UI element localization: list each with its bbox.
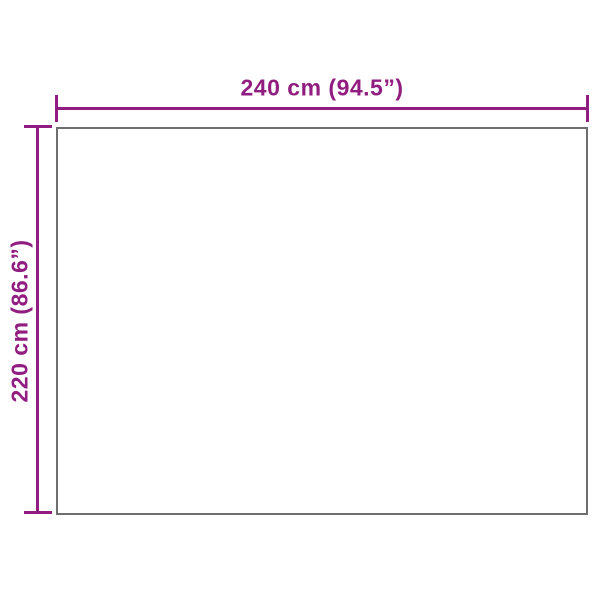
dimension-diagram: 240 cm (94.5”) 220 cm (86.6”)	[0, 0, 600, 600]
height-dimension-line	[36, 127, 39, 514]
height-dimension-tick-bottom	[24, 511, 52, 514]
width-dimension-tick-right	[586, 95, 589, 122]
height-dimension-label: 220 cm (86.6”)	[7, 240, 34, 403]
product-outline	[56, 127, 588, 515]
height-dimension-tick-top	[24, 125, 52, 128]
width-dimension-line	[56, 107, 588, 110]
width-dimension-tick-left	[55, 95, 58, 122]
width-dimension-label: 240 cm (94.5”)	[241, 75, 404, 102]
